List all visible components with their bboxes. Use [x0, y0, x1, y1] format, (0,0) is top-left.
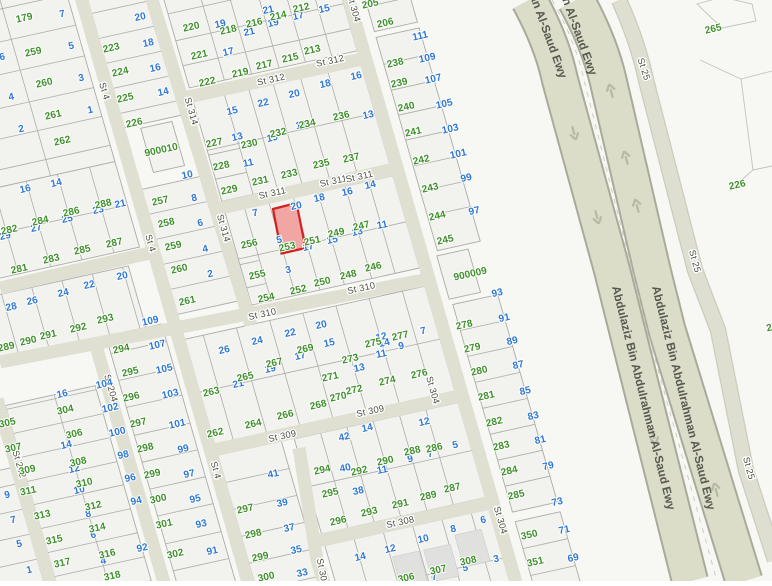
svg-text:2: 2 [765, 322, 772, 334]
